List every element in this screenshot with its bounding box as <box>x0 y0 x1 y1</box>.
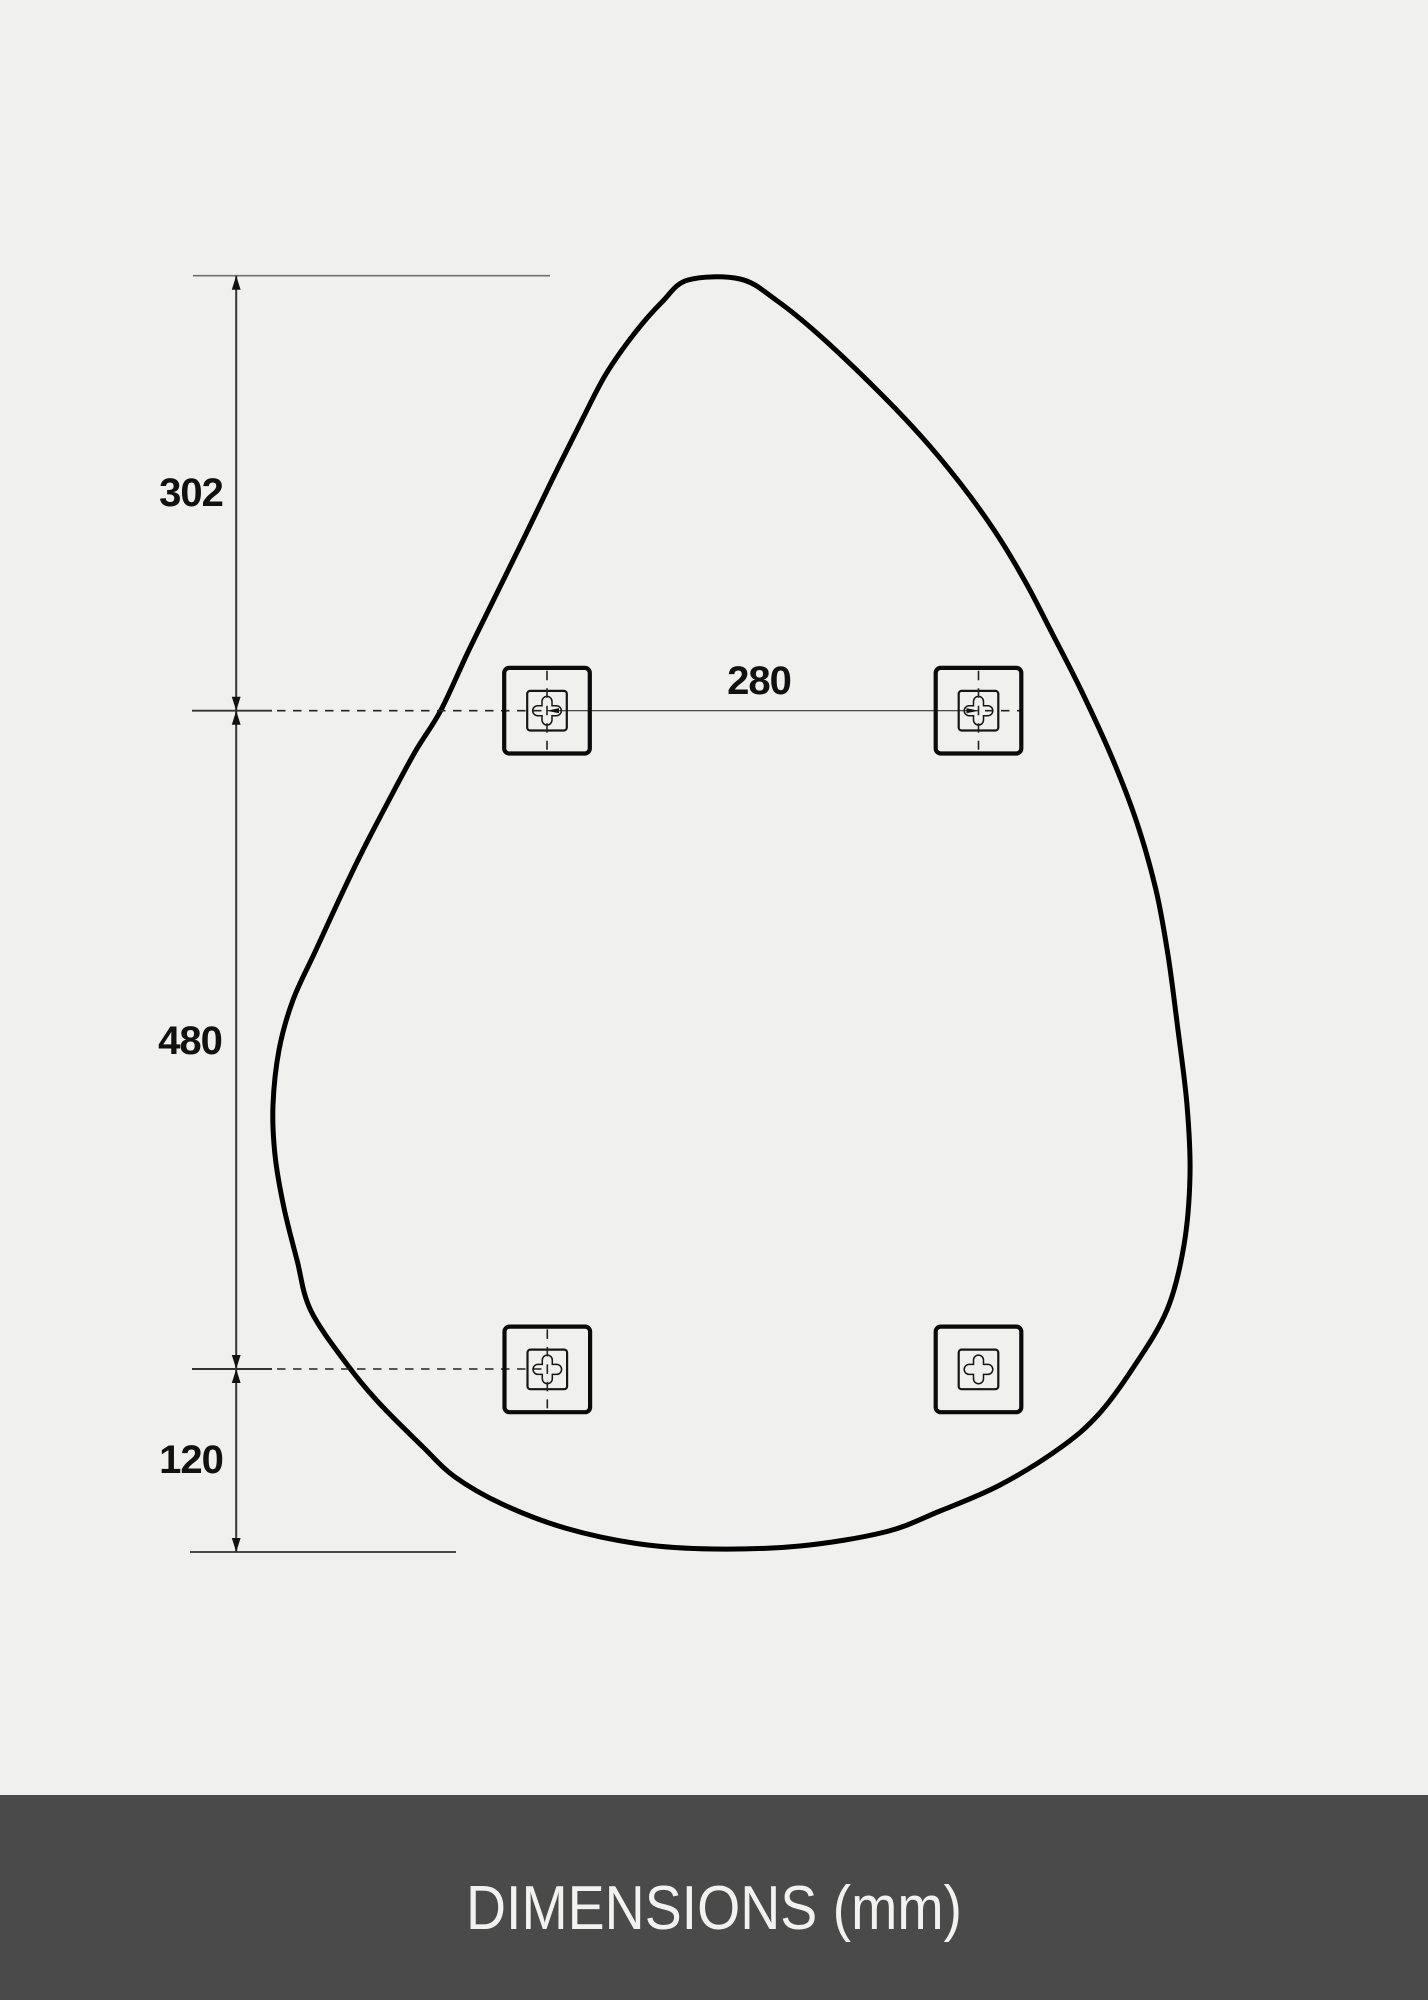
svg-text:280: 280 <box>727 659 791 703</box>
svg-text:DIMENSIONS (mm): DIMENSIONS (mm) <box>466 1874 962 1943</box>
svg-text:480: 480 <box>158 1019 222 1063</box>
svg-text:120: 120 <box>159 1438 223 1482</box>
svg-text:302: 302 <box>159 471 223 515</box>
